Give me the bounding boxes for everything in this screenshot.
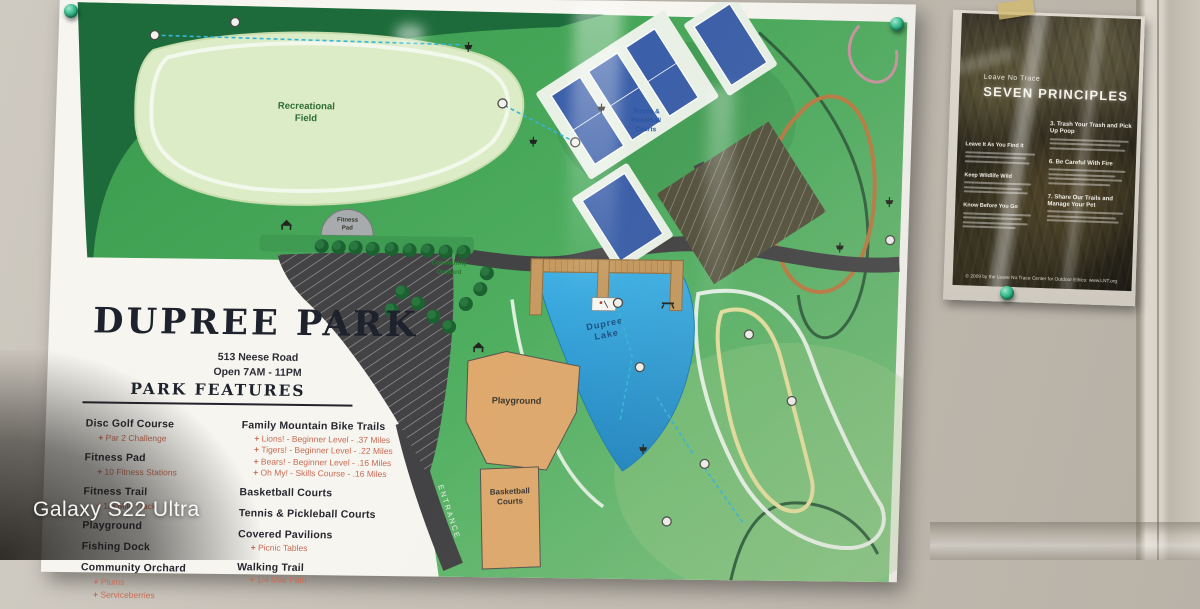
svg-text:Courts: Courts — [635, 126, 657, 133]
feature-label: Community Orchard — [81, 561, 231, 575]
principle-heading: Know Before You Go — [963, 202, 1039, 212]
svg-text:Tennis &: Tennis & — [633, 108, 660, 115]
svg-text:Pickleball: Pickleball — [631, 117, 661, 124]
illegible-text-line — [1047, 219, 1119, 224]
illegible-text-line — [1049, 168, 1126, 173]
wall-horizontal-seam — [930, 522, 1200, 560]
illegible-text-line — [1048, 173, 1115, 177]
feature-label: Disc Golf Course — [86, 417, 236, 431]
principle-heading: 6. Be Careful With Fire — [1049, 159, 1133, 169]
park-map-board: Recreational Field ENTRANCE — [41, 0, 916, 582]
plastic-glare — [954, 46, 1016, 76]
svg-text:Courts: Courts — [497, 496, 524, 506]
illegible-text-line — [1049, 147, 1125, 152]
illegible-text-line — [963, 216, 1022, 220]
feature-sub: 10 Fitness Stations — [97, 466, 234, 478]
svg-text:Basketball: Basketball — [490, 486, 530, 497]
features-heading: PARK FEATURES — [82, 378, 353, 406]
basketball-courts-area: Basketball Courts — [480, 467, 540, 569]
illegible-text-line — [964, 190, 1028, 194]
leave-no-trace-poster: Leave No Trace SEVEN PRINCIPLES Leave It… — [943, 10, 1145, 307]
feature-sub: Oh My! - Skills Course - .16 Miles — [253, 467, 420, 479]
push-pin — [64, 4, 78, 18]
illegible-text-line — [965, 155, 1026, 159]
illegible-text-line — [964, 186, 1022, 190]
illegible-text-line — [964, 181, 1031, 185]
feature-sub: Bears! - Beginner Level - .16 Miles — [253, 456, 420, 468]
feature-sub: Par 2 Challenge — [98, 433, 235, 445]
feature-sub: Plums — [93, 576, 230, 588]
illegible-text-line — [965, 151, 1035, 155]
svg-text:Pad: Pad — [342, 225, 354, 231]
principle-heading: 7. Share Our Trails and Manage Your Pet — [1047, 194, 1131, 211]
feature-label: Tennis & Pickleball Courts — [239, 507, 419, 521]
illegible-text-line — [963, 212, 1031, 216]
illegible-text-line — [963, 225, 1016, 229]
dock-sign — [592, 298, 616, 311]
feature-sub: Lions! - Beginner Level - .37 Miles — [254, 433, 421, 445]
push-pin — [890, 17, 904, 31]
illegible-text-line — [1047, 215, 1116, 219]
feature-sub: Serviceberries — [93, 589, 230, 601]
playground-label: Playground — [492, 395, 542, 406]
feature-label: Walking Trail — [237, 561, 417, 575]
principle-heading: Keep Wildlife Wild — [964, 172, 1040, 182]
illegible-text-line — [1048, 177, 1122, 182]
illegible-text-line — [965, 160, 1030, 164]
principle-heading: Leave It As You Find It — [965, 141, 1041, 151]
poster-title: SEVEN PRINCIPLES — [983, 84, 1128, 104]
svg-text:Orchard: Orchard — [436, 269, 462, 276]
poster-right-column: 3. Trash Your Trash and Pick Up Poop 6. … — [1047, 111, 1135, 226]
push-pin — [1000, 286, 1014, 300]
poster-footer: © 2009 by the Leave No Trace Center for … — [959, 274, 1124, 285]
field-label-line2: Field — [295, 113, 318, 124]
poster-left-column: Leave It As You Find It Keep Wildlife Wi… — [962, 131, 1041, 232]
siding-groove — [1157, 0, 1159, 560]
illegible-text-line — [1049, 142, 1120, 146]
feature-label: Fishing Dock — [81, 540, 231, 554]
feature-label: Family Mountain Bike Trails — [242, 419, 422, 433]
poster-brand: Leave No Trace — [984, 74, 1041, 83]
illegible-text-line — [1048, 182, 1110, 186]
illegible-text-line — [1047, 210, 1123, 215]
feature-label: Covered Pavilions — [238, 528, 418, 542]
field-label-line1: Recreational — [278, 101, 335, 113]
park-address-block: 513 Neese Road Open 7AM - 11PM — [147, 349, 368, 382]
wall-siding-panel — [1136, 0, 1200, 560]
camera-watermark: Galaxy S22 Ultra — [33, 498, 200, 522]
feature-label: Basketball Courts — [239, 486, 419, 500]
park-title: DUPREE PARK — [92, 300, 419, 345]
svg-text:Fitness: Fitness — [337, 217, 359, 223]
poster-artwork: Leave No Trace SEVEN PRINCIPLES Leave It… — [953, 13, 1141, 291]
feature-sub: Tigers! - Beginner Level - .22 Miles — [254, 444, 421, 456]
illegible-text-line — [963, 221, 1028, 225]
feature-sub: Picnic Tables — [251, 542, 418, 554]
principle-heading: 3. Trash Your Trash and Pick Up Poop — [1050, 121, 1134, 138]
feature-sub: 1/4 Mile Path — [249, 574, 416, 586]
svg-text:Community: Community — [431, 260, 467, 267]
feature-label: Fitness Pad — [84, 451, 234, 465]
